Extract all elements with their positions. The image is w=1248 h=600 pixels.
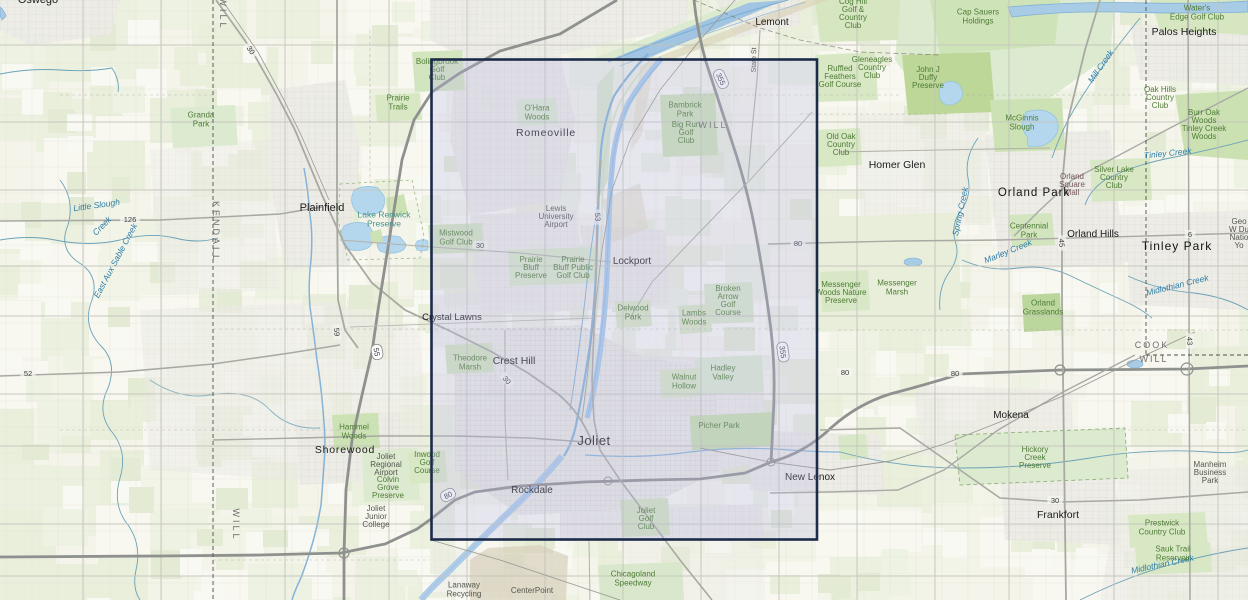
svg-text:HammelWoods: HammelWoods xyxy=(339,423,369,441)
svg-text:52: 52 xyxy=(24,369,32,378)
svg-text:Orland Park: Orland Park xyxy=(998,187,1070,199)
svg-text:Homer Glen: Homer Glen xyxy=(869,159,926,171)
svg-text:80: 80 xyxy=(951,369,959,378)
svg-text:Tinley Park: Tinley Park xyxy=(1142,239,1213,253)
svg-text:59: 59 xyxy=(332,327,342,336)
svg-text:LanawayRecycling: LanawayRecycling xyxy=(447,581,482,599)
svg-text:Lemont: Lemont xyxy=(755,17,789,28)
svg-text:80: 80 xyxy=(841,368,849,377)
svg-text:43: 43 xyxy=(1185,337,1194,346)
svg-text:Plainfield: Plainfield xyxy=(300,202,345,214)
svg-text:COOK: COOK xyxy=(1135,340,1170,350)
svg-text:PrestwickCountry Club: PrestwickCountry Club xyxy=(1139,519,1186,537)
svg-text:6: 6 xyxy=(1188,230,1192,239)
svg-text:126: 126 xyxy=(124,215,137,224)
svg-text:WILL: WILL xyxy=(231,508,241,541)
svg-text:Shorewood: Shorewood xyxy=(315,444,375,456)
svg-text:Oswego: Oswego xyxy=(18,0,58,6)
svg-text:ChicagolandSpeedway: ChicagolandSpeedway xyxy=(611,570,655,588)
svg-text:WILL: WILL xyxy=(1139,354,1168,364)
svg-text:Cap SauersHoldings: Cap SauersHoldings xyxy=(957,8,999,26)
svg-text:Frankfort: Frankfort xyxy=(1037,509,1079,521)
svg-text:Palos Heights: Palos Heights xyxy=(1152,26,1217,38)
svg-text:Mokena: Mokena xyxy=(993,410,1029,421)
svg-text:PrairieTrails: PrairieTrails xyxy=(386,94,410,112)
svg-text:55: 55 xyxy=(372,347,382,357)
svg-text:KENDALL: KENDALL xyxy=(211,201,221,263)
svg-text:CenterPoint: CenterPoint xyxy=(511,586,554,595)
svg-text:45: 45 xyxy=(1057,239,1066,248)
svg-text:Orland Hills: Orland Hills xyxy=(1067,229,1119,240)
svg-text:30: 30 xyxy=(1051,496,1059,505)
svg-text:McGinnisSlough: McGinnisSlough xyxy=(1005,114,1038,132)
svg-text:WILL: WILL xyxy=(218,0,228,31)
svg-text:Sauk TrailReservoir: Sauk TrailReservoir xyxy=(1155,545,1191,563)
